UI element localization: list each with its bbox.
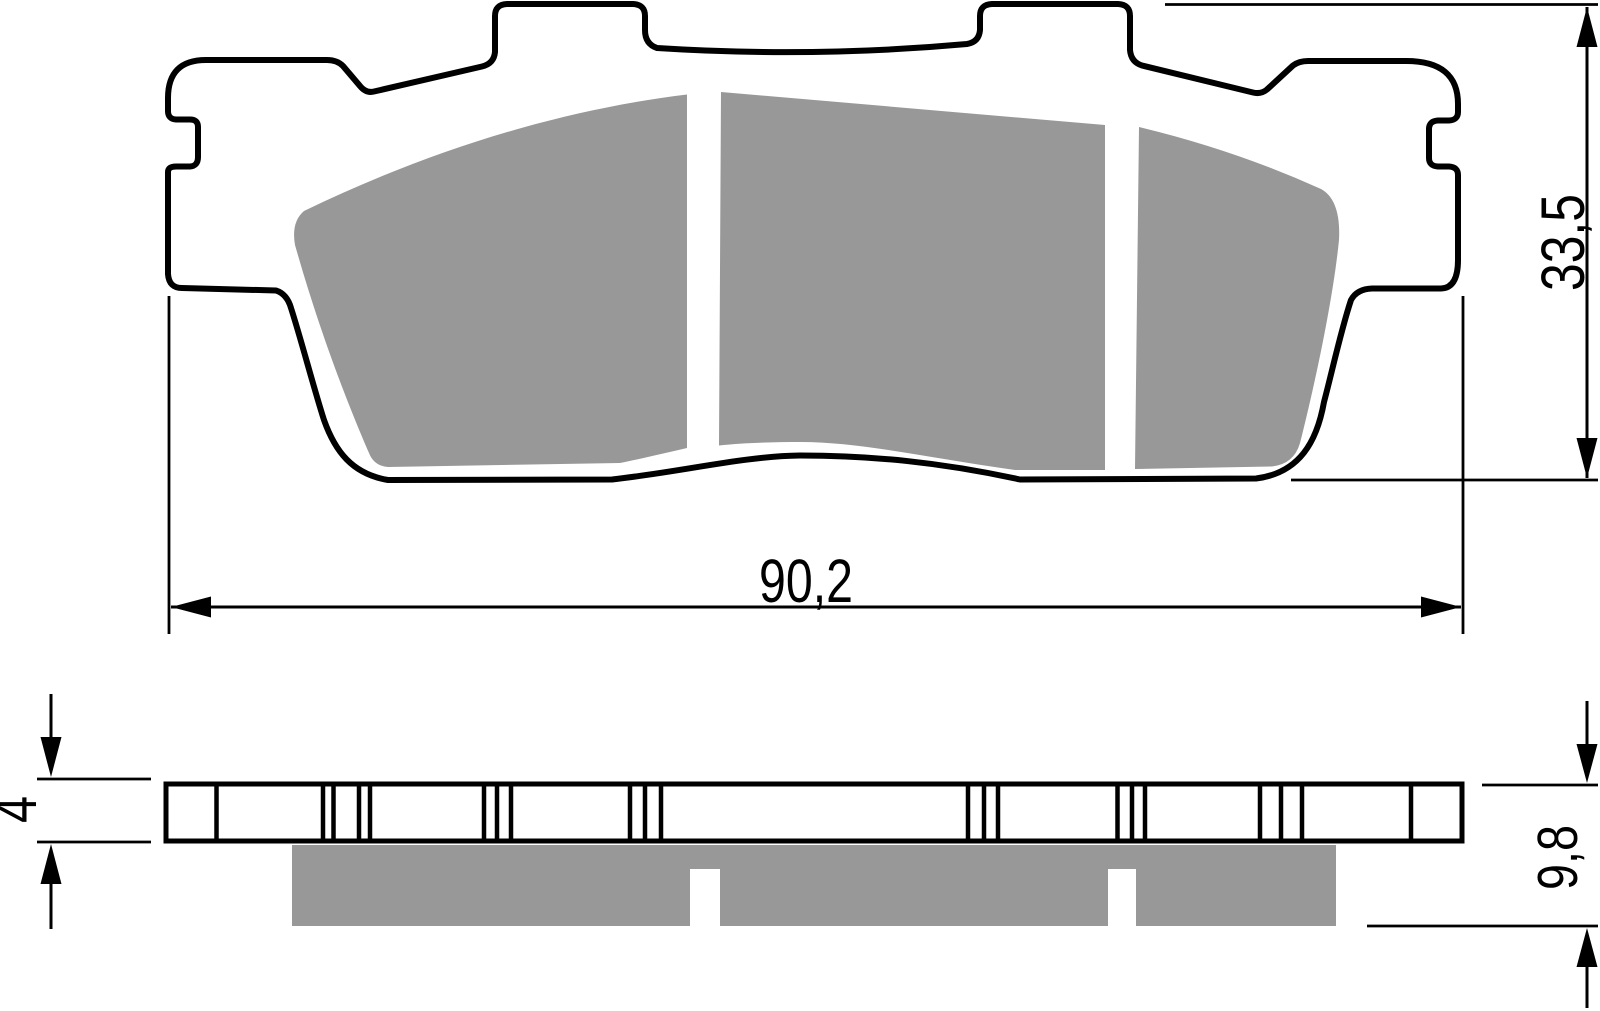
svg-text:4: 4: [0, 796, 49, 823]
svg-text:9,8: 9,8: [1526, 825, 1590, 890]
svg-text:90,2: 90,2: [759, 547, 853, 615]
svg-text:33,5: 33,5: [1529, 194, 1597, 291]
